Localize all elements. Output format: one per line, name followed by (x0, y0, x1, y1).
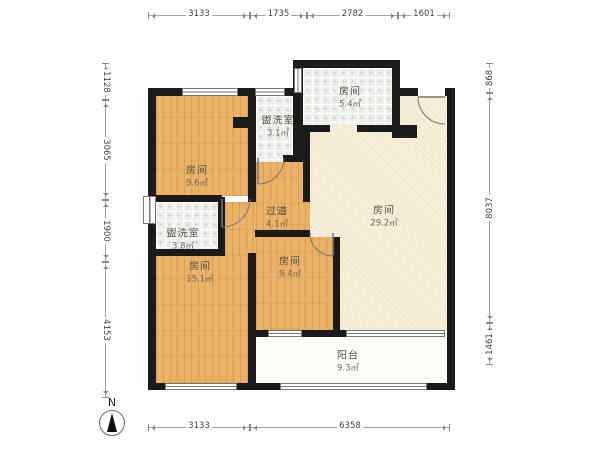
dim-tick (486, 364, 493, 365)
room-label: 阳台9.3㎡ (337, 350, 359, 373)
room-label: 房间9.4㎡ (279, 256, 301, 279)
wall (148, 383, 165, 390)
window (143, 196, 156, 224)
floor-wood (256, 237, 333, 330)
dim-label: 3065 (101, 137, 111, 163)
dim-arrow (300, 13, 306, 19)
room-label: 房间9.6㎡ (186, 165, 208, 188)
window (294, 68, 302, 93)
dimension-segment: 1128 (101, 63, 111, 100)
dim-arrow (308, 13, 314, 19)
wall (283, 155, 300, 162)
dimension-segment: 3133 (148, 11, 250, 21)
dimension-segment: 868 (485, 63, 495, 93)
room-area: 4.1㎡ (266, 219, 288, 230)
dim-arrow (251, 425, 257, 431)
room-name: 盥洗室 (262, 115, 295, 128)
window (255, 88, 285, 96)
dim-label: 8037 (485, 195, 495, 221)
dim-arrow (399, 13, 405, 19)
room-area: 9.4㎡ (279, 269, 301, 280)
wall (302, 330, 346, 337)
dimension-segment: 1735 (250, 11, 307, 21)
wall (148, 88, 156, 390)
dimension-segment: 3133 (148, 423, 250, 433)
dim-arrow (149, 425, 155, 431)
wall (237, 383, 280, 390)
room-name: 房间 (186, 261, 213, 274)
dim-arrow (443, 425, 449, 431)
compass-icon (99, 410, 125, 436)
wall (395, 88, 418, 96)
room-area: 15.1㎡ (186, 274, 213, 285)
window (346, 330, 445, 337)
wall (295, 60, 400, 68)
window (165, 383, 237, 390)
dimension-segment: 2782 (307, 11, 398, 21)
room-name: 阳台 (337, 350, 359, 363)
dim-label: 1900 (101, 218, 111, 244)
window (182, 88, 238, 96)
room-label: 房间15.1㎡ (186, 261, 213, 284)
wall (248, 253, 256, 390)
wall (447, 88, 455, 390)
dim-arrow (487, 324, 493, 330)
dimension-segment: 6358 (250, 423, 450, 433)
dim-arrow (103, 255, 109, 261)
dim-label: 2782 (340, 9, 366, 19)
room-label: 盥洗室3.8㎡ (167, 228, 200, 251)
dim-label: 3133 (186, 421, 212, 431)
dim-label: 868 (485, 68, 495, 88)
room-name: 房间 (279, 256, 301, 269)
dim-arrow (103, 101, 109, 107)
room-area: 29.2㎡ (370, 218, 397, 229)
wall (248, 96, 256, 202)
wall (233, 117, 248, 128)
room-area: 3.8㎡ (167, 241, 200, 252)
dim-arrow (487, 358, 493, 364)
dim-label: 1128 (101, 69, 111, 95)
room-label: 房间29.2㎡ (370, 205, 397, 228)
wall (255, 230, 310, 237)
dim-arrow (243, 13, 249, 19)
dim-arrow (243, 425, 249, 431)
room-area: 9.3㎡ (337, 363, 359, 374)
compass-needle-icon (107, 413, 117, 432)
wall (148, 195, 222, 202)
dimension-segment: 1900 (101, 200, 111, 262)
dim-tick (449, 424, 450, 431)
wall (427, 383, 455, 390)
window (268, 330, 302, 337)
dim-arrow (391, 13, 397, 19)
dimension-segment: 3065 (101, 100, 111, 200)
dim-arrow (103, 201, 109, 207)
room-area: 5.4㎡ (339, 99, 361, 110)
dim-tick (449, 12, 450, 19)
room-name: 房间 (370, 205, 397, 218)
window (280, 383, 427, 390)
dim-arrow (103, 193, 109, 199)
room-name: 过道 (266, 206, 288, 219)
wall (256, 330, 268, 337)
dim-arrow (103, 263, 109, 269)
room-label: 过道4.1㎡ (266, 206, 288, 229)
dim-label: 1601 (411, 9, 437, 19)
dimension-segment: 1461 (485, 323, 495, 365)
room-area: 9.6㎡ (186, 178, 208, 189)
wall (300, 125, 330, 132)
room-label: 房间5.4㎡ (339, 86, 361, 109)
wall (303, 132, 310, 202)
compass: N (96, 396, 128, 436)
room-name: 房间 (186, 165, 208, 178)
dim-arrow (487, 316, 493, 322)
room-area: 3.1㎡ (262, 128, 295, 139)
floorplan-canvas: 房间9.6㎡盥洗室3.1㎡房间5.4㎡房间29.2㎡过道4.1㎡盥洗室3.8㎡房… (0, 0, 600, 450)
dim-label: 1461 (485, 331, 495, 357)
wall (218, 197, 225, 256)
room-name: 盥洗室 (167, 228, 200, 241)
floor-wood (225, 202, 256, 256)
dimension-segment: 8037 (485, 93, 495, 323)
wall (333, 237, 340, 337)
dim-label: 1735 (266, 9, 292, 19)
dimension-segment: 4153 (101, 262, 111, 398)
wall (357, 125, 397, 132)
dim-label: 3133 (186, 9, 212, 19)
dim-label: 4153 (101, 317, 111, 343)
dimension-segment: 1601 (398, 11, 450, 21)
room-name: 房间 (339, 86, 361, 99)
dim-arrow (443, 13, 449, 19)
dim-label: 6358 (337, 421, 363, 431)
north-label: N (96, 396, 128, 409)
dim-arrow (487, 94, 493, 100)
dim-arrow (251, 13, 257, 19)
room-label: 盥洗室3.1㎡ (262, 115, 295, 138)
dim-arrow (149, 13, 155, 19)
